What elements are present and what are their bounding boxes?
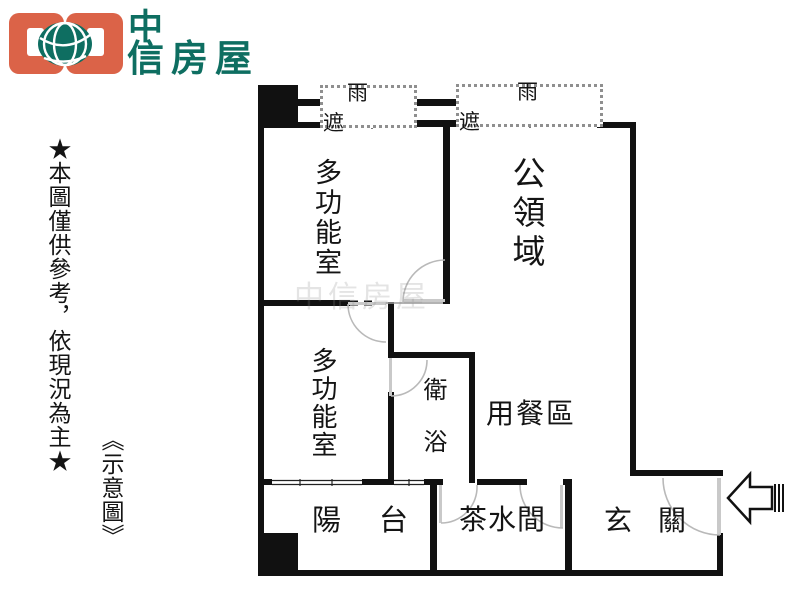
- wall-segment: [717, 533, 723, 576]
- rain-shelter-box-2: 雨遮: [456, 84, 603, 127]
- wall-segment: [630, 122, 636, 476]
- wall-segment: [414, 99, 460, 106]
- wall-segment: [258, 570, 723, 576]
- room-label-multi-function-room-1: 多功能室: [312, 158, 339, 278]
- room-label-rain-shelter-2: 雨遮: [459, 76, 600, 136]
- door-leaf: [717, 478, 721, 535]
- brand-logo-icon: [9, 13, 123, 74]
- wall-segment: [630, 470, 723, 476]
- wall-segment: [258, 479, 272, 485]
- room-label-pantry: 茶水間: [459, 507, 546, 535]
- door-leaf: [389, 358, 392, 396]
- floorplan-page: 雨遮 雨遮 中信房屋 多功能室 公領域 多功能室 衛浴 用餐區 陽台 茶水間 玄…: [0, 0, 800, 600]
- room-label-public-area: 公領域: [508, 156, 541, 273]
- room-label-multi-function-room-2: 多功能室: [309, 347, 335, 459]
- wall-segment: [388, 392, 394, 482]
- entrance-arrow-tail: [775, 484, 783, 512]
- caption-note: 《示意圖》: [99, 428, 122, 548]
- brand-text-bottom: 信房屋: [127, 40, 259, 77]
- door-leaf: [560, 485, 563, 528]
- rain-shelter-box-1: 雨遮: [320, 85, 417, 128]
- room-label-balcony: 陽台: [312, 507, 446, 536]
- room-label-rain-shelter-1: 雨遮: [323, 77, 414, 137]
- disclaimer-note: ★本圖僅供參考，依現況為主★: [46, 137, 69, 473]
- room-label-dining-area: 用餐區: [486, 401, 576, 429]
- wall-segment: [469, 352, 475, 483]
- wall-segment: [477, 479, 527, 485]
- entrance-arrow-icon: [728, 474, 783, 522]
- wall-segment: [258, 122, 264, 576]
- room-label-entry: 玄關: [604, 508, 712, 536]
- watermark-text: 中信房屋: [294, 272, 430, 316]
- wall-segment: [414, 120, 460, 127]
- wall-segment: [362, 479, 394, 485]
- entrance-arrow-body: [728, 474, 772, 522]
- black-column: [258, 85, 298, 128]
- wall-segment: [565, 479, 572, 576]
- wall-segment: [443, 122, 450, 304]
- window-line: [272, 479, 362, 486]
- room-label-bathroom: 衛浴: [420, 377, 444, 481]
- black-column: [258, 533, 298, 576]
- wall-segment: [390, 352, 475, 358]
